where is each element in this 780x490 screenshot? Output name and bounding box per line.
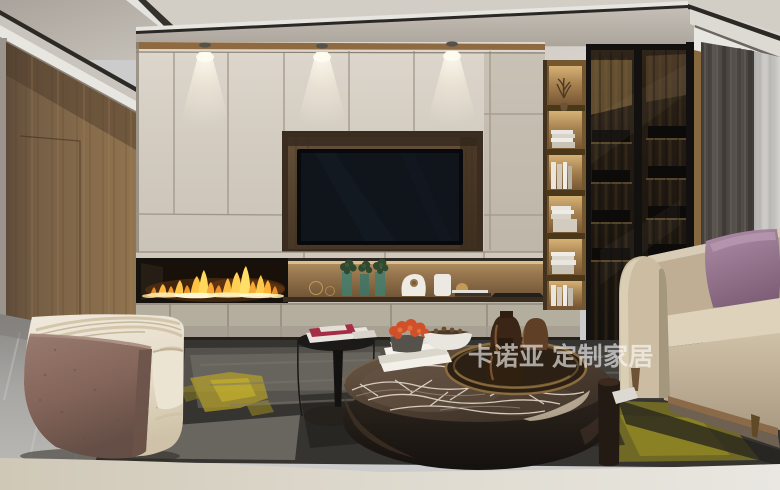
svg-text:卡诺亚 定制家居: 卡诺亚 定制家居 xyxy=(468,342,654,371)
